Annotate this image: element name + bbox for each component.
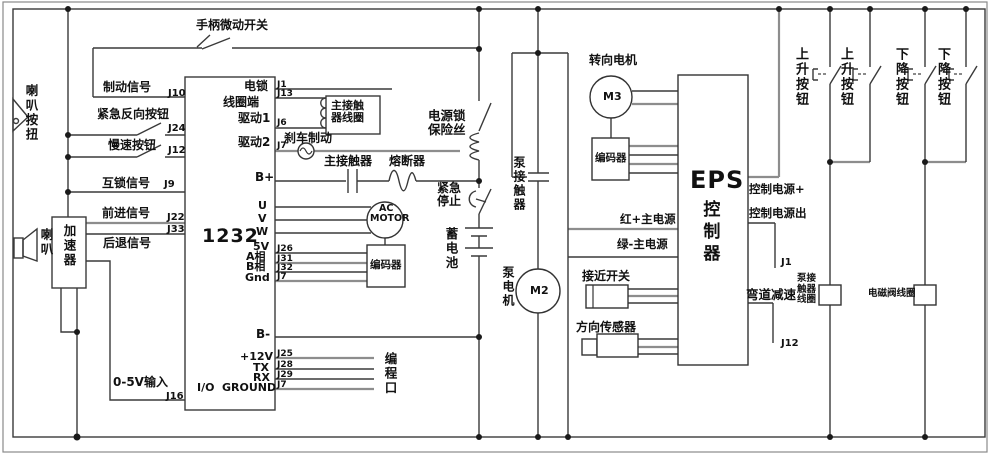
- speaker-icon: [14, 238, 23, 258]
- label-lock-coil-2: 线圈端: [223, 96, 259, 109]
- label-battery: 蓄电池: [444, 227, 458, 271]
- label-up-button-1: 上升按钮: [793, 47, 807, 107]
- label-eps-title: EPS: [690, 168, 744, 194]
- label-0-5v-input: 0-5V输入: [113, 376, 168, 389]
- label-io: I/O: [197, 382, 214, 394]
- label-eps-subtitle: 控制器: [700, 200, 718, 266]
- label-m2: M2: [530, 285, 549, 297]
- direction-sensor-box: [597, 334, 638, 357]
- label-lock-coil-1: 电锁: [244, 80, 268, 93]
- label-down-button-1: 下降按钮: [893, 47, 907, 107]
- label-backward-signal: 后退信号: [103, 237, 151, 250]
- label-main-contactor: 主接触器: [324, 155, 372, 168]
- pin-j1-eps: J1: [781, 258, 792, 269]
- pin-j7-encoder: J7: [277, 273, 287, 283]
- pin-j25: J25: [277, 350, 293, 360]
- label-v: V: [258, 213, 267, 225]
- pin-j33: J33: [167, 225, 185, 236]
- label-brake: 刹车制动: [284, 132, 332, 145]
- label-down-button-2: 下降按钮: [935, 47, 949, 107]
- label-main-contactor-coil: 主接触器线圈: [331, 100, 367, 124]
- label-control-power-out: 控制电源出: [749, 207, 807, 219]
- label-power-lock-fuse: 电源锁保险丝: [428, 109, 470, 136]
- label-gnd: Gnd: [245, 272, 270, 284]
- solenoid-valve-coil-box: [914, 285, 936, 305]
- label-programming-port: 编程口: [383, 352, 397, 396]
- label-curve-deceleration: 弯道减速: [746, 288, 796, 302]
- label-interlock-signal: 互锁信号: [102, 177, 150, 190]
- label-b-minus: B-: [256, 328, 270, 341]
- pump-contactor-coil-box: [819, 285, 841, 305]
- label-u: U: [258, 200, 267, 212]
- pin-j7-ground: J7: [277, 381, 287, 391]
- label-up-button-2: 上升按钮: [838, 47, 852, 107]
- label-emergency-reverse-button: 紧急反向按钮: [97, 108, 169, 121]
- label-fuse: 熔断器: [389, 155, 425, 168]
- label-slow-button: 慢速按钮: [108, 139, 156, 152]
- label-encoder-steering: 编码器: [595, 153, 627, 164]
- label-pump-contactor: 泵接触器: [512, 156, 525, 212]
- label-ground: GROUND: [222, 382, 276, 394]
- label-b-plus: B+: [255, 171, 274, 184]
- pin-j6: J6: [277, 119, 287, 129]
- label-brake-signal: 制动信号: [103, 81, 151, 94]
- direction-sensor-box-small: [582, 339, 597, 355]
- label-drive2: 驱动2: [238, 136, 270, 149]
- pin-j12-eps: J12: [781, 339, 799, 350]
- label-pump-motor: 泵电机: [501, 266, 514, 308]
- wiring-diagram: 手柄微动开关 喇叭按扭 喇叭 加速器 制动信号 J10 紧急反向按钮 J24 慢…: [0, 0, 990, 459]
- label-proximity-switch: 接近开关: [582, 270, 630, 283]
- label-motor: MOTOR: [370, 214, 409, 224]
- label-m3: M3: [603, 91, 622, 103]
- label-controller-model: 1232: [202, 226, 259, 247]
- label-forward-signal: 前进信号: [102, 207, 150, 220]
- label-encoder-motor: 编码器: [370, 260, 402, 271]
- pin-j9: J9: [164, 180, 175, 191]
- label-solenoid-valve-coil: 电磁阀线圈: [868, 289, 916, 299]
- label-accelerator: 加速器: [62, 224, 76, 268]
- label-horn: 喇叭: [39, 228, 53, 257]
- label-drive1: 驱动1: [238, 112, 270, 125]
- label-pump-contactor-coil: 泵接触器线圈: [797, 274, 818, 306]
- label-handle-micro-switch: 手柄微动开关: [196, 19, 268, 32]
- label-w: W: [256, 226, 268, 238]
- label-horn-button: 喇叭按扭: [24, 84, 38, 142]
- label-red-main-power: 红+主电源: [620, 213, 676, 225]
- pin-j16: J16: [166, 392, 184, 403]
- pin-j12: J12: [168, 146, 186, 157]
- pin-j13: J13: [277, 90, 293, 100]
- pin-j22: J22: [167, 213, 185, 224]
- label-green-main-power: 绿-主电源: [617, 238, 668, 250]
- label-control-power-plus: 控制电源+: [749, 183, 805, 195]
- label-direction-sensor: 方向传感器: [576, 321, 636, 334]
- pin-j24: J24: [168, 124, 186, 135]
- pin-j10: J10: [168, 89, 186, 100]
- label-steering-motor: 转向电机: [589, 54, 637, 67]
- label-emergency-stop: 紧急停止: [437, 182, 463, 208]
- proximity-switch-box: [586, 285, 628, 308]
